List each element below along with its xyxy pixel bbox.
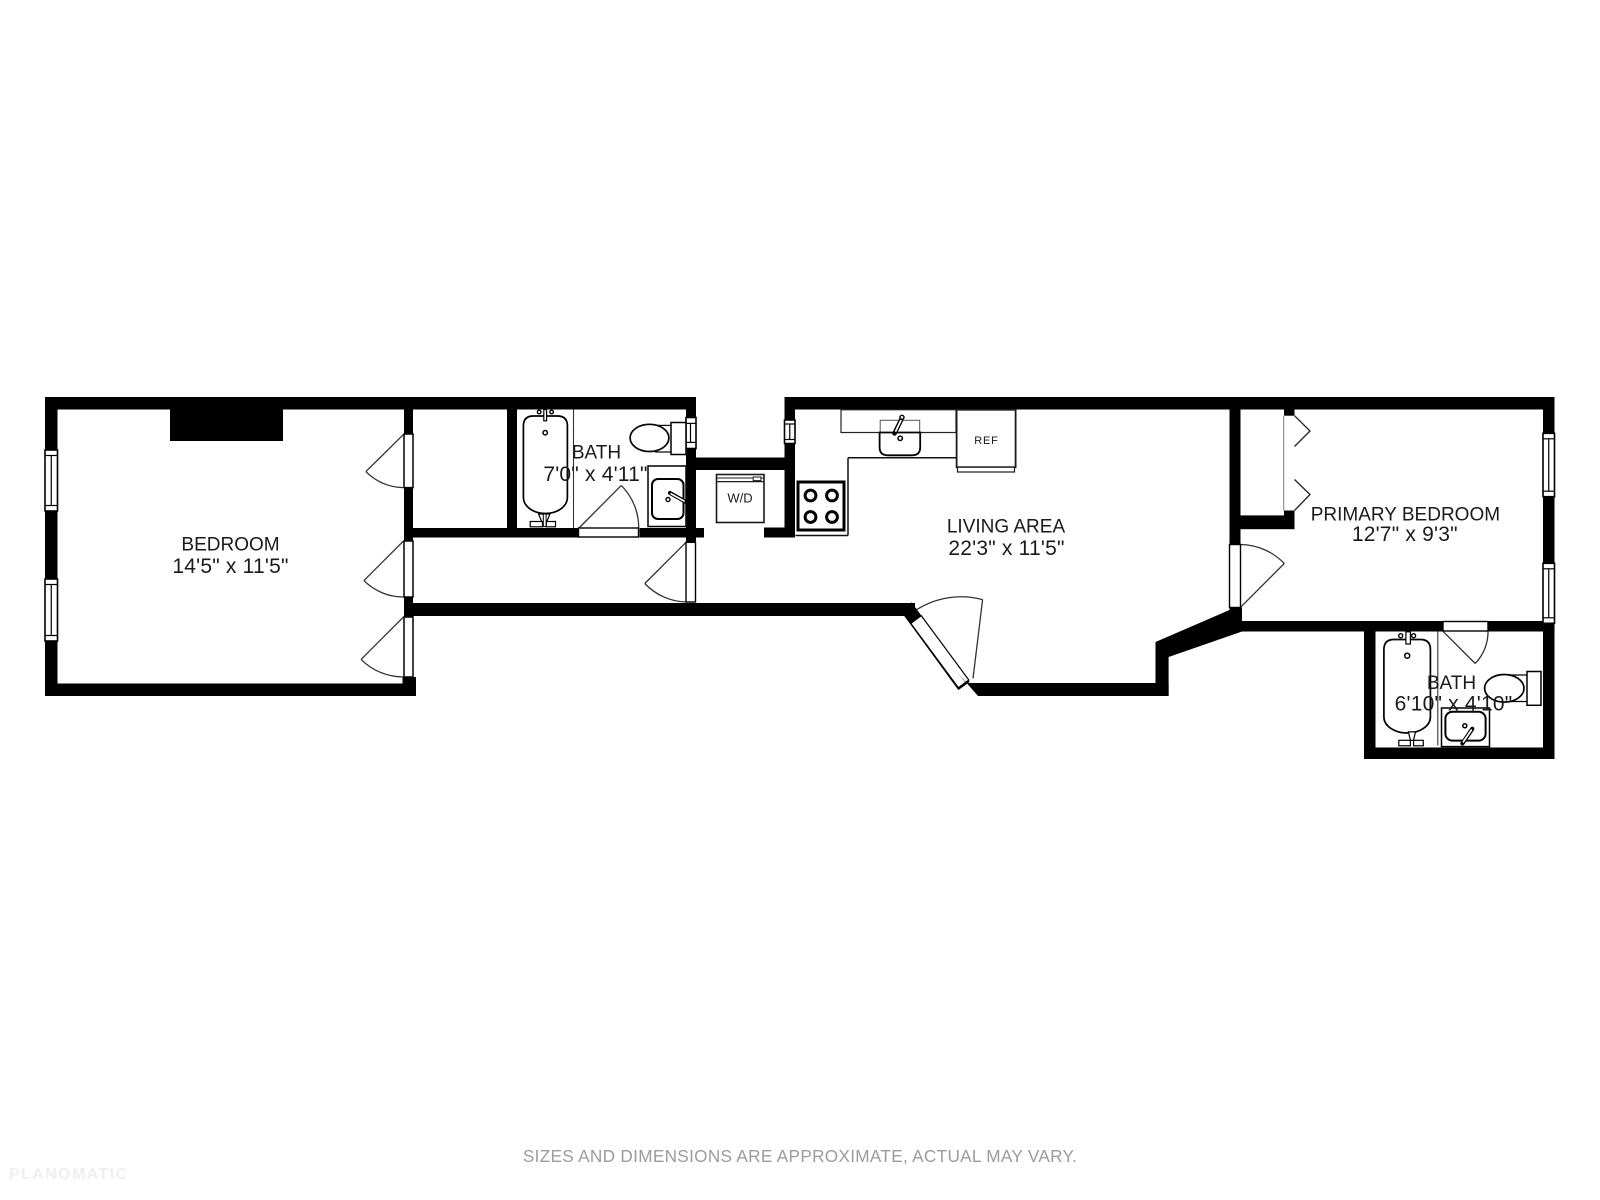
svg-text:6'10" x 4'10": 6'10" x 4'10" bbox=[1395, 693, 1513, 716]
svg-text:BEDROOM: BEDROOM bbox=[181, 535, 279, 556]
svg-text:SIZES AND DIMENSIONS ARE APPRO: SIZES AND DIMENSIONS ARE APPROXIMATE, AC… bbox=[523, 1146, 1077, 1166]
svg-text:14'5" x 11'5": 14'5" x 11'5" bbox=[172, 555, 288, 578]
svg-text:22'3" x 11'5": 22'3" x 11'5" bbox=[948, 537, 1064, 560]
svg-text:7'0" x 4'11": 7'0" x 4'11" bbox=[543, 463, 647, 486]
svg-text:LIVING AREA: LIVING AREA bbox=[947, 517, 1066, 538]
svg-text:BATH: BATH bbox=[1427, 673, 1476, 694]
svg-text:12'7" x 9'3": 12'7" x 9'3" bbox=[1352, 523, 1458, 546]
svg-text:PLANOMATIC: PLANOMATIC bbox=[9, 1166, 128, 1183]
svg-text:BATH: BATH bbox=[572, 443, 621, 464]
svg-text:W/D: W/D bbox=[727, 491, 752, 506]
svg-text:REF: REF bbox=[974, 435, 998, 447]
